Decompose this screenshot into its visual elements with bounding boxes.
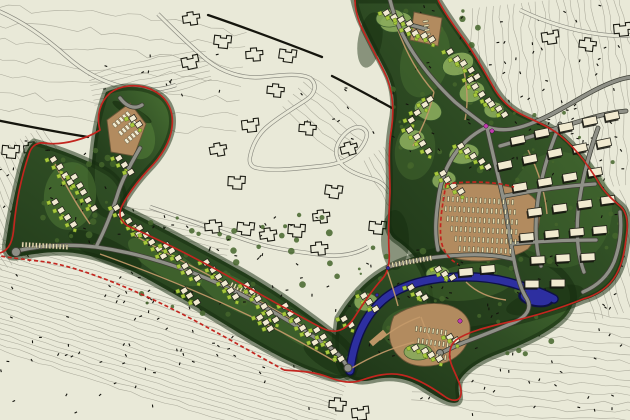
villa-roof bbox=[553, 203, 568, 212]
tree-icon bbox=[475, 25, 481, 31]
parking-stall bbox=[501, 238, 503, 243]
tree-icon bbox=[261, 225, 265, 229]
parking-stall bbox=[478, 237, 480, 242]
tree-icon bbox=[611, 160, 615, 164]
parking-stall bbox=[505, 239, 507, 244]
tree-icon bbox=[505, 351, 509, 355]
parking-stall bbox=[454, 206, 456, 211]
tree-icon bbox=[197, 282, 201, 286]
parking-stall bbox=[39, 243, 41, 248]
spot-tick bbox=[416, 249, 419, 250]
tree-icon bbox=[439, 363, 443, 367]
tree-icon bbox=[217, 232, 222, 237]
parking-stall bbox=[495, 209, 497, 214]
spot-tick bbox=[153, 372, 156, 373]
tree-icon bbox=[552, 161, 555, 164]
tree-icon bbox=[516, 348, 521, 353]
villa-house bbox=[479, 265, 495, 276]
tree-icon bbox=[86, 231, 93, 238]
parking-stall bbox=[514, 210, 516, 215]
parking-stall bbox=[468, 246, 470, 251]
parking-stall bbox=[473, 247, 475, 252]
parking-stall bbox=[516, 220, 518, 225]
parking-stall bbox=[484, 198, 486, 203]
parking-stall bbox=[455, 226, 457, 231]
spot-tick bbox=[171, 224, 174, 225]
parking-stall bbox=[472, 207, 474, 212]
parking-stall bbox=[482, 247, 484, 252]
tree-icon bbox=[455, 344, 459, 348]
spot-tick bbox=[345, 87, 348, 88]
parking-stall bbox=[455, 236, 457, 241]
tree-icon bbox=[93, 148, 98, 153]
parking-stall bbox=[29, 242, 31, 247]
tree-icon bbox=[407, 164, 412, 169]
parking-stall bbox=[506, 219, 508, 224]
tree-icon bbox=[279, 233, 285, 239]
tree-icon bbox=[196, 232, 200, 236]
spot-tick bbox=[145, 367, 146, 370]
tree-icon bbox=[533, 113, 537, 117]
villa-house bbox=[579, 253, 595, 263]
parking-stall bbox=[66, 244, 68, 249]
spot-tick bbox=[32, 340, 33, 343]
parking-stall bbox=[62, 244, 64, 249]
page: { "name": "site-master-plan", "palette":… bbox=[0, 0, 630, 420]
tree-icon bbox=[110, 161, 116, 167]
parking-stall bbox=[505, 248, 507, 253]
parking-stall bbox=[487, 228, 489, 233]
tree-icon bbox=[146, 302, 149, 305]
parking-stall bbox=[45, 243, 47, 248]
spot-tick bbox=[621, 168, 624, 169]
tree-icon bbox=[283, 224, 287, 228]
spot-tick bbox=[39, 337, 42, 338]
tree-icon bbox=[496, 320, 500, 324]
parking-stall bbox=[49, 243, 51, 248]
parking-stall bbox=[459, 246, 461, 251]
villa-house bbox=[524, 280, 539, 289]
spot-tick bbox=[615, 214, 618, 215]
spot-tick bbox=[611, 407, 612, 410]
tree-icon bbox=[424, 108, 428, 112]
parking-stall bbox=[469, 237, 471, 242]
parking-stall bbox=[470, 197, 472, 202]
spot-tick bbox=[150, 54, 151, 57]
tree-icon bbox=[90, 218, 97, 225]
tree-icon bbox=[105, 201, 108, 204]
tree-icon bbox=[299, 281, 306, 288]
tree-icon bbox=[431, 43, 435, 47]
villa-roof bbox=[593, 226, 608, 235]
parking-stall bbox=[507, 199, 509, 204]
survey-marker bbox=[484, 124, 488, 128]
parking-stall bbox=[495, 248, 497, 253]
parking-stall bbox=[486, 208, 488, 213]
tree-icon bbox=[327, 260, 333, 266]
parking-stall bbox=[509, 209, 511, 214]
villa-house bbox=[543, 230, 559, 241]
parking-stall bbox=[500, 209, 502, 214]
master-plan-drawing bbox=[0, 0, 630, 420]
tree-icon bbox=[612, 233, 618, 239]
parking-stall bbox=[491, 208, 493, 213]
parking-stall bbox=[479, 218, 481, 223]
tree-icon bbox=[513, 112, 516, 115]
tree-icon bbox=[608, 211, 613, 216]
parking-stall bbox=[59, 244, 61, 249]
parking-stall bbox=[466, 197, 468, 202]
parking-stall bbox=[491, 248, 493, 253]
parking-stall bbox=[470, 217, 472, 222]
tree-icon bbox=[428, 155, 432, 159]
parking-stall bbox=[497, 228, 499, 233]
survey-marker bbox=[375, 293, 379, 297]
tree-icon bbox=[320, 215, 325, 220]
tree-icon bbox=[176, 216, 179, 219]
parking-stall bbox=[493, 199, 495, 204]
parking-stall bbox=[465, 217, 467, 222]
parking-stall bbox=[510, 239, 512, 244]
tree-icon bbox=[230, 247, 236, 253]
parking-stall bbox=[497, 219, 499, 224]
tree-icon bbox=[55, 238, 59, 242]
parking-stall bbox=[502, 199, 504, 204]
parking-stall bbox=[445, 206, 447, 211]
villa-roof bbox=[481, 265, 496, 274]
tree-icon bbox=[522, 167, 524, 169]
parking-stall bbox=[504, 209, 506, 214]
tree-icon bbox=[400, 125, 404, 129]
tree-icon bbox=[399, 120, 402, 123]
tree-icon bbox=[358, 268, 361, 271]
tree-icon bbox=[555, 223, 558, 226]
parking-stall bbox=[463, 246, 465, 251]
parking-stall bbox=[477, 208, 479, 213]
parking-stall bbox=[451, 226, 453, 231]
tree-icon bbox=[460, 195, 464, 199]
parking-stall bbox=[56, 244, 58, 249]
spot-tick bbox=[487, 304, 488, 307]
villa-roof bbox=[531, 256, 545, 264]
parking-stall bbox=[464, 236, 466, 241]
spot-tick bbox=[489, 64, 492, 65]
parking-stall bbox=[501, 229, 503, 234]
spot-tick bbox=[243, 301, 246, 302]
tree-icon bbox=[597, 197, 599, 199]
tree-icon bbox=[578, 136, 581, 139]
parking-stall bbox=[512, 200, 514, 205]
tree-icon bbox=[86, 161, 92, 167]
parking-stall bbox=[475, 198, 477, 203]
parking-stall bbox=[515, 229, 517, 234]
spot-tick bbox=[532, 42, 533, 45]
parking-stall bbox=[449, 206, 451, 211]
parking-stall bbox=[457, 197, 459, 202]
parking-stall bbox=[474, 227, 476, 232]
villa-roof bbox=[581, 253, 595, 261]
spot-tick bbox=[138, 277, 141, 278]
villa-house bbox=[518, 233, 534, 244]
tree-icon bbox=[420, 92, 425, 97]
tree-icon bbox=[42, 201, 47, 206]
site-plan-canvas bbox=[0, 0, 630, 420]
tree-icon bbox=[73, 228, 77, 232]
tree-icon bbox=[256, 245, 261, 250]
parking-stall bbox=[491, 238, 493, 243]
tree-icon bbox=[326, 229, 333, 236]
parking-stall bbox=[483, 228, 485, 233]
parking-stall bbox=[489, 198, 491, 203]
tree-icon bbox=[231, 228, 237, 234]
tree-icon bbox=[297, 213, 301, 217]
villa-roof bbox=[520, 233, 535, 242]
parking-stall bbox=[22, 242, 24, 247]
villa-house bbox=[591, 226, 607, 237]
parking-stall bbox=[481, 208, 483, 213]
parking-stall bbox=[488, 218, 490, 223]
parking-stall bbox=[473, 237, 475, 242]
villa-house bbox=[554, 254, 570, 264]
parking-stall bbox=[493, 218, 495, 223]
parking-stall bbox=[511, 219, 513, 224]
parking-stall bbox=[510, 229, 512, 234]
tree-icon bbox=[75, 165, 81, 171]
villa-roof bbox=[578, 199, 593, 208]
spot-tick bbox=[25, 140, 28, 141]
villa-house bbox=[457, 268, 473, 279]
tree-icon bbox=[371, 246, 376, 251]
tree-icon bbox=[92, 213, 97, 218]
villa-roof bbox=[528, 207, 543, 216]
tree-icon bbox=[69, 234, 73, 238]
parking-stall bbox=[483, 218, 485, 223]
parking-stall bbox=[474, 217, 476, 222]
parking-stall bbox=[479, 198, 481, 203]
spot-tick bbox=[392, 92, 393, 95]
parking-stall bbox=[32, 243, 34, 248]
parking-stall bbox=[496, 238, 498, 243]
tree-icon bbox=[568, 206, 572, 210]
parking-stall bbox=[461, 217, 463, 222]
tree-icon bbox=[350, 329, 354, 333]
tree-icon bbox=[235, 300, 239, 304]
parking-stall bbox=[447, 216, 449, 221]
tree-icon bbox=[489, 120, 494, 125]
parking-stall bbox=[486, 247, 488, 252]
parking-stall bbox=[463, 207, 465, 212]
villa-roof bbox=[570, 228, 585, 237]
villa-house bbox=[568, 228, 584, 239]
tree-icon bbox=[189, 228, 195, 234]
parking-stall bbox=[514, 239, 516, 244]
spot-tick bbox=[311, 294, 312, 297]
villa-roof bbox=[556, 254, 570, 262]
parking-stall bbox=[469, 227, 471, 232]
tree-icon bbox=[605, 246, 609, 250]
survey-marker bbox=[386, 266, 390, 270]
spot-tick bbox=[212, 343, 215, 344]
tree-icon bbox=[200, 310, 206, 316]
parking-stall bbox=[451, 216, 453, 221]
spot-tick bbox=[488, 307, 489, 310]
tree-icon bbox=[275, 324, 279, 328]
parking-stall bbox=[459, 236, 461, 241]
villa-roof bbox=[459, 268, 474, 277]
tree-icon bbox=[420, 248, 427, 255]
tree-icon bbox=[40, 215, 46, 221]
tree-icon bbox=[251, 282, 256, 287]
parking-stall bbox=[42, 243, 44, 248]
tree-icon bbox=[148, 220, 153, 225]
tree-icon bbox=[99, 162, 105, 168]
parking-stall bbox=[478, 227, 480, 232]
tree-icon bbox=[523, 351, 528, 356]
parking-stall bbox=[452, 196, 454, 201]
tree-icon bbox=[334, 274, 340, 280]
tree-icon bbox=[138, 128, 142, 132]
parking-stall bbox=[487, 238, 489, 243]
villa-roof bbox=[525, 280, 539, 288]
villa-roof bbox=[545, 230, 560, 239]
parking-stall bbox=[35, 243, 37, 248]
spot-tick bbox=[508, 370, 509, 373]
culdesac-bulb bbox=[344, 364, 352, 372]
tree-icon bbox=[76, 217, 81, 222]
parking-stall bbox=[498, 199, 500, 204]
parking-stall bbox=[509, 249, 511, 254]
parking-stall bbox=[459, 207, 461, 212]
parking-stall bbox=[25, 242, 27, 247]
tree-icon bbox=[498, 302, 502, 306]
parking-stall bbox=[447, 196, 449, 201]
tree-icon bbox=[360, 273, 362, 275]
survey-marker bbox=[458, 319, 462, 323]
survey-marker bbox=[490, 129, 494, 133]
parking-stall bbox=[465, 227, 467, 232]
tree-icon bbox=[288, 248, 295, 255]
villa-roof bbox=[551, 279, 565, 287]
tree-icon bbox=[548, 338, 554, 344]
tree-icon bbox=[294, 237, 299, 242]
parking-stall bbox=[460, 226, 462, 231]
parking-stall bbox=[500, 248, 502, 253]
tree-icon bbox=[233, 259, 239, 265]
tree-icon bbox=[314, 346, 318, 350]
parking-stall bbox=[506, 229, 508, 234]
tree-icon bbox=[518, 257, 523, 262]
spot-tick bbox=[547, 119, 550, 120]
parking-stall bbox=[468, 207, 470, 212]
villa-house bbox=[550, 279, 565, 288]
culdesac-bulb bbox=[12, 248, 21, 257]
parking-stall bbox=[482, 237, 484, 242]
villa-house bbox=[529, 256, 545, 266]
parking-stall bbox=[456, 216, 458, 221]
tree-icon bbox=[434, 299, 437, 302]
spot-tick bbox=[118, 234, 121, 235]
parking-stall bbox=[492, 228, 494, 233]
tree-icon bbox=[439, 296, 445, 302]
tree-icon bbox=[477, 314, 481, 318]
tree-icon bbox=[461, 9, 464, 12]
tree-icon bbox=[105, 155, 111, 161]
tree-icon bbox=[532, 148, 535, 151]
parking-stall bbox=[52, 244, 54, 249]
tree-icon bbox=[562, 111, 566, 115]
tree-icon bbox=[515, 178, 519, 182]
tree-icon bbox=[547, 258, 553, 264]
tree-icon bbox=[453, 82, 457, 86]
tree-icon bbox=[61, 158, 66, 163]
tree-icon bbox=[225, 312, 230, 317]
parking-stall bbox=[502, 219, 504, 224]
parking-stall bbox=[477, 247, 479, 252]
